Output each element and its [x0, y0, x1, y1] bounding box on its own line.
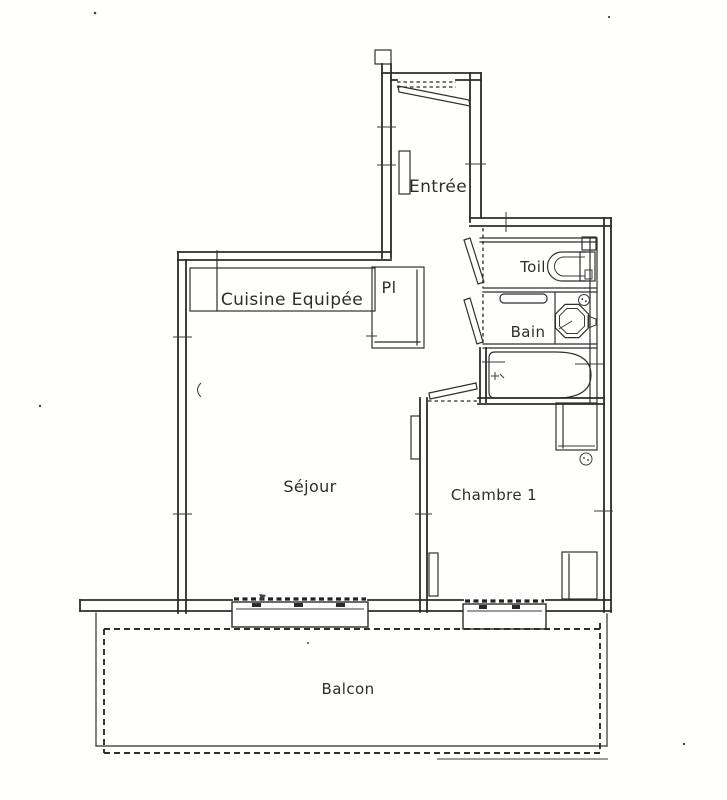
toilet-door [464, 228, 484, 288]
basin-tap [588, 316, 596, 328]
bedroom-door [428, 383, 478, 401]
bath-door [464, 294, 483, 346]
room-label-cuisine: Cuisine Equipée [221, 290, 363, 310]
wall-pilaster [375, 50, 391, 64]
room-label-entree: Entrée [409, 177, 467, 197]
room-label-chambre: Chambre 1 [451, 486, 537, 504]
radiator-chambre [429, 553, 438, 596]
spotlight-symbol [579, 295, 590, 306]
room-label-toilet: Toil [519, 258, 546, 276]
bath-shelf [500, 294, 547, 303]
bedroom-door-leaf [429, 383, 477, 399]
wall-break-mark [198, 383, 202, 397]
room-label-balcon: Balcon [322, 680, 375, 698]
floor-plan-page: Entrée Cuisine Equipée Pl Toil Bain Séjo… [0, 0, 727, 800]
window-chambre [463, 601, 546, 629]
entry-door-leaf [398, 86, 470, 106]
toilet-door-leaf [464, 238, 484, 284]
tub-tap [500, 374, 504, 378]
room-label-bain: Bain [511, 323, 546, 341]
closet-top-right [556, 403, 597, 450]
entry-door [397, 82, 470, 106]
radiator-sejour [411, 416, 420, 459]
outlet-symbol [580, 453, 592, 465]
room-label-placard: Pl [382, 278, 397, 297]
toilet-icon [548, 237, 597, 281]
bath-door-leaf [464, 298, 483, 344]
floor-plan-drawing: Entrée Cuisine Equipée Pl Toil Bain Séjo… [0, 0, 727, 800]
window-sejour [232, 599, 368, 627]
wall-tick-marks [173, 127, 613, 514]
scan-noise [39, 12, 685, 746]
room-label-sejour: Séjour [283, 477, 336, 496]
closet-pl [372, 267, 424, 348]
bathtub-icon [482, 352, 591, 398]
closet-bottom-right [562, 552, 597, 599]
